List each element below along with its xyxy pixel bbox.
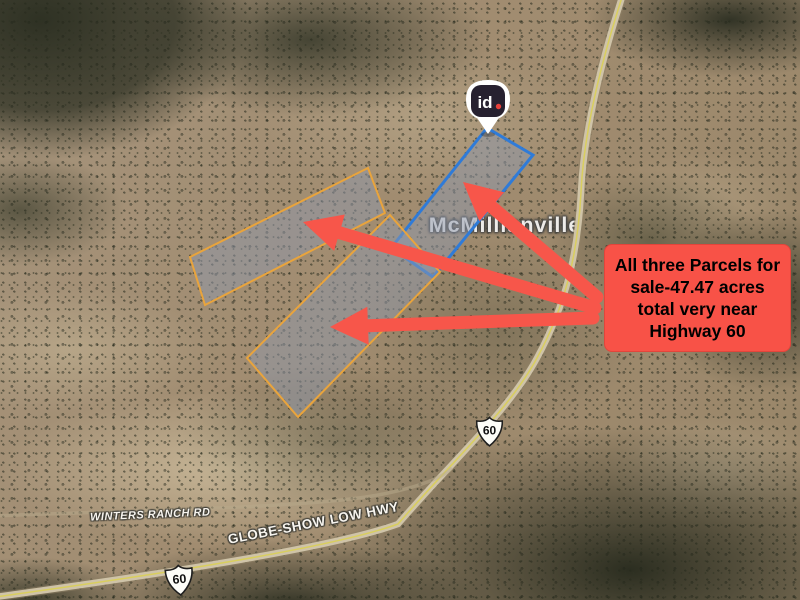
pin-brand-dot-icon	[496, 104, 501, 109]
listing-pin[interactable]: id	[461, 76, 515, 138]
us-60-shield-upper: 60	[474, 415, 505, 448]
us-60-shield-lower: 60	[161, 562, 199, 599]
callout-line-4: Highway 60	[605, 320, 790, 342]
route-number: 60	[483, 424, 497, 438]
map-canvas[interactable]: McMillianville WINTERS RANCH RD GLOBE-SH…	[0, 0, 800, 600]
callout-line-3: total very near	[605, 298, 790, 320]
callout-line-1: All three Parcels for	[605, 254, 790, 276]
route-number: 60	[172, 572, 187, 587]
pin-brand-text: id	[477, 93, 492, 112]
callout-line-2: sale-47.47 acres	[605, 276, 790, 298]
parcels-callout: All three Parcels for sale-47.47 acres t…	[604, 244, 791, 352]
